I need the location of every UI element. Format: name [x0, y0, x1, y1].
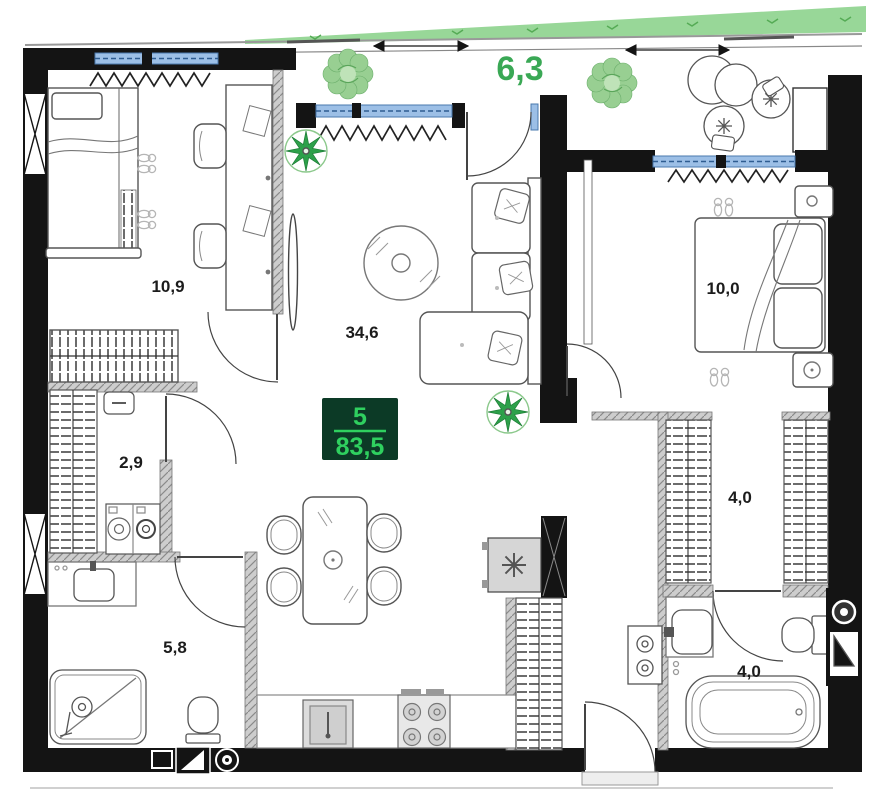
room-label-living: 34,6 [345, 323, 378, 342]
dining-table [303, 497, 367, 624]
door-bathroom1 [175, 557, 245, 627]
door-entrance [585, 702, 655, 772]
room-label-closet: 2,9 [119, 453, 143, 472]
bathtub [686, 676, 820, 748]
washing-machine [628, 626, 662, 684]
balcony-chair [704, 106, 744, 151]
plant-icon [285, 130, 327, 172]
water-heater [826, 588, 862, 686]
sofa-pillow [487, 330, 523, 366]
unit-total-area: 83,5 [336, 433, 385, 461]
slippers-icon [138, 210, 156, 228]
desk-chair [194, 224, 226, 268]
balcony-area-label: 6,3 [496, 50, 543, 88]
parapet-rail-segment [724, 37, 794, 39]
tv [289, 214, 298, 330]
bathroom-sink [74, 569, 114, 601]
slippers-icon [138, 154, 156, 172]
balcony-table [715, 64, 757, 106]
threshold [582, 772, 658, 785]
window-mullion [352, 103, 361, 118]
door-closet [166, 394, 236, 464]
window-mullion [716, 155, 726, 168]
bedroom1-furniture [46, 85, 272, 382]
shower [50, 670, 146, 744]
bed-footboard [46, 248, 141, 258]
unit-badge: 5 83,5 [322, 398, 398, 461]
radiator-zigzag [318, 126, 446, 140]
sofa-pillow [499, 261, 534, 296]
slippers-icon [714, 198, 732, 216]
bathroom-sink [672, 610, 712, 654]
corridor-fixtures [628, 626, 662, 684]
door-balcony [467, 112, 531, 180]
room-label-bedroom1: 10,9 [151, 277, 184, 296]
dining-chair [267, 568, 301, 606]
dining-chair [367, 514, 401, 552]
slippers-icon [710, 368, 728, 386]
balcony-nook [793, 88, 827, 152]
rug [364, 226, 438, 300]
bed-pillow [774, 224, 822, 284]
kitchen-counter [257, 695, 516, 748]
room-label-bathroom1: 5,8 [163, 638, 187, 657]
closet-furniture [50, 390, 160, 554]
toilet [186, 697, 220, 743]
desk-chair [194, 124, 226, 168]
unit-number: 5 [353, 403, 367, 431]
parapet-rail-segment [287, 40, 360, 42]
balcony-strip [25, 6, 866, 152]
bathroom1-fixtures [48, 561, 220, 744]
door-bedroom1 [208, 312, 278, 382]
bed-pillow [52, 93, 102, 119]
nightstand [795, 186, 833, 217]
radiator-zigzag [668, 170, 788, 182]
plant-icon [487, 391, 529, 433]
door-bathroom2 [713, 591, 783, 661]
window-mullion [142, 51, 152, 66]
toilet [782, 616, 828, 654]
room-label-wardrobe: 4,0 [728, 488, 752, 507]
snowflake-icon [502, 553, 526, 577]
bed-side-shelf [121, 190, 136, 248]
room-label-bedroom2: 10,0 [706, 279, 739, 298]
balcony-chair [752, 76, 790, 118]
tree-icon [587, 58, 637, 108]
radiator-zigzag [90, 73, 210, 86]
washer-dryer [106, 504, 160, 554]
balcony-door-sidelight [531, 104, 538, 130]
dining-chair [267, 516, 301, 554]
bed-pillow [774, 288, 822, 348]
dining-chair [367, 567, 401, 605]
floor-plan-drawing: 10,9 34,6 2,9 5,8 10,0 4,0 4,0 6,3 5 83,… [0, 0, 869, 794]
tree-icon [323, 49, 373, 99]
room-label-bathroom2: 4,0 [737, 662, 761, 681]
floor-plan: 10,9 34,6 2,9 5,8 10,0 4,0 4,0 6,3 5 83,… [0, 0, 869, 794]
